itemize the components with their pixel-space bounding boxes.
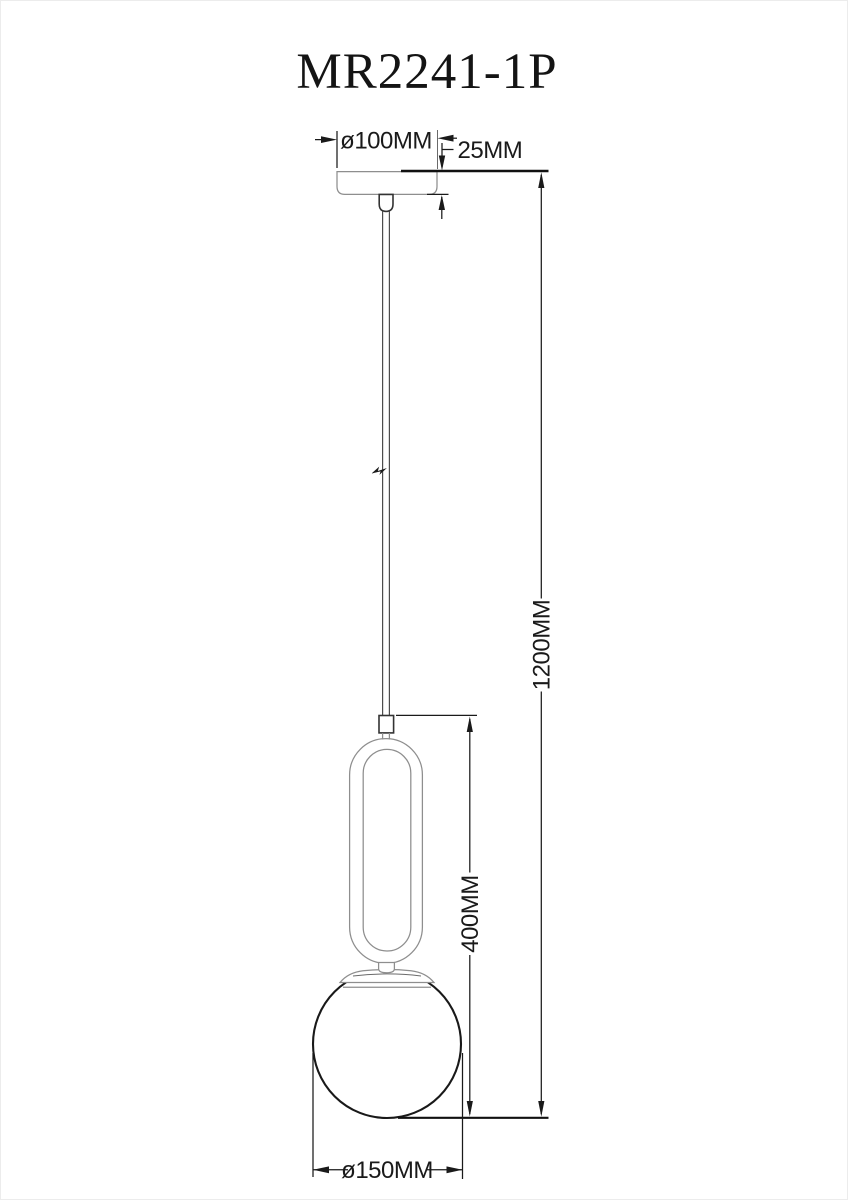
globe-diameter-label: ø150MM bbox=[341, 1157, 433, 1184]
arrow-down-icon bbox=[439, 156, 445, 171]
ring-inner-outline bbox=[363, 749, 411, 951]
suspension-wire bbox=[372, 211, 390, 715]
arrow-up-icon bbox=[439, 195, 445, 210]
arrow-down-icon bbox=[467, 1101, 473, 1117]
arrow-right-icon bbox=[321, 136, 337, 143]
arrow-right-icon bbox=[447, 1166, 463, 1173]
canopy bbox=[337, 172, 437, 212]
technical-drawing: MR2241-1P ø100MM bbox=[1, 1, 848, 1200]
cord-grip bbox=[379, 194, 393, 211]
globe-outline bbox=[313, 970, 461, 1118]
dim-canopy-height: 25MM bbox=[427, 137, 522, 219]
wire-break-mark bbox=[372, 467, 387, 475]
frame-ring bbox=[350, 716, 423, 964]
canopy-diameter-label: ø100MM bbox=[340, 128, 432, 155]
model-number: MR2241-1P bbox=[296, 44, 557, 100]
dim-overall-drop: 1200MM bbox=[529, 172, 556, 1116]
globe-neck bbox=[379, 963, 395, 973]
canopy-height-label: 25MM bbox=[458, 137, 523, 164]
canopy-body bbox=[337, 172, 437, 195]
arrow-up-icon bbox=[467, 717, 473, 733]
drawing-page: MR2241-1P ø100MM bbox=[0, 0, 848, 1200]
arrow-left-icon bbox=[438, 135, 454, 142]
top-connector-block bbox=[379, 716, 394, 733]
ring-outer-outline bbox=[350, 739, 423, 964]
dim-canopy-diameter: ø100MM bbox=[315, 128, 457, 170]
globe-shade bbox=[313, 963, 461, 1119]
arrow-up-icon bbox=[538, 172, 544, 188]
fixture-height-label: 400MM bbox=[457, 875, 484, 953]
overall-drop-label: 1200MM bbox=[529, 600, 556, 690]
arrow-down-icon bbox=[538, 1101, 544, 1117]
arrow-left-icon bbox=[313, 1166, 329, 1173]
